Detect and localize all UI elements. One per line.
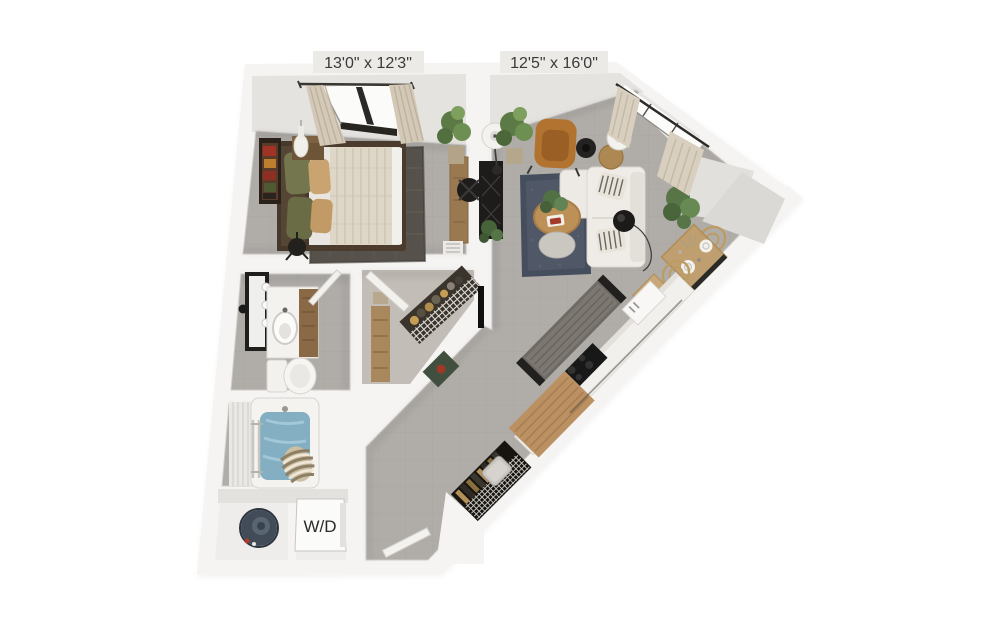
svg-text:W/D: W/D [303,517,336,536]
svg-text:13'0" x 12'3": 13'0" x 12'3" [324,55,412,72]
svg-text:12'5" x 16'0": 12'5" x 16'0" [510,55,598,72]
